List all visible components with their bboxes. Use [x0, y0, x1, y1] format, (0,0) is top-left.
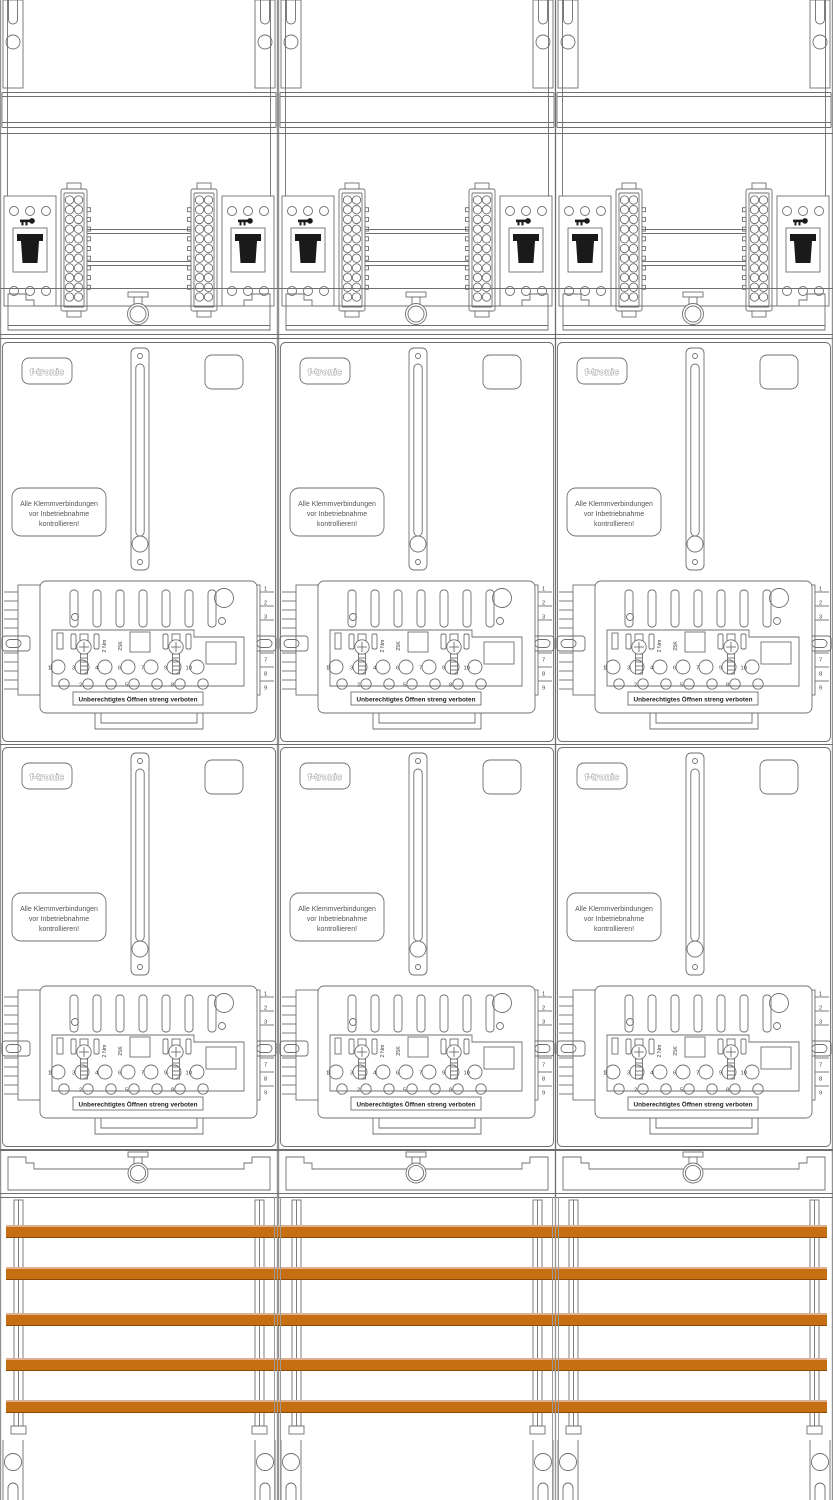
busbar: [6, 1358, 827, 1371]
column-junction-rail: [552, 1197, 559, 1500]
busbar: [6, 1313, 827, 1326]
cabinet-drawing: f-tronic Alle Klemmverbindungen vor Inbe…: [0, 0, 833, 1500]
busbar: [6, 1400, 827, 1413]
column-junction-rail: [274, 1197, 281, 1500]
busbar: [6, 1267, 827, 1280]
busbar: [6, 1225, 827, 1238]
